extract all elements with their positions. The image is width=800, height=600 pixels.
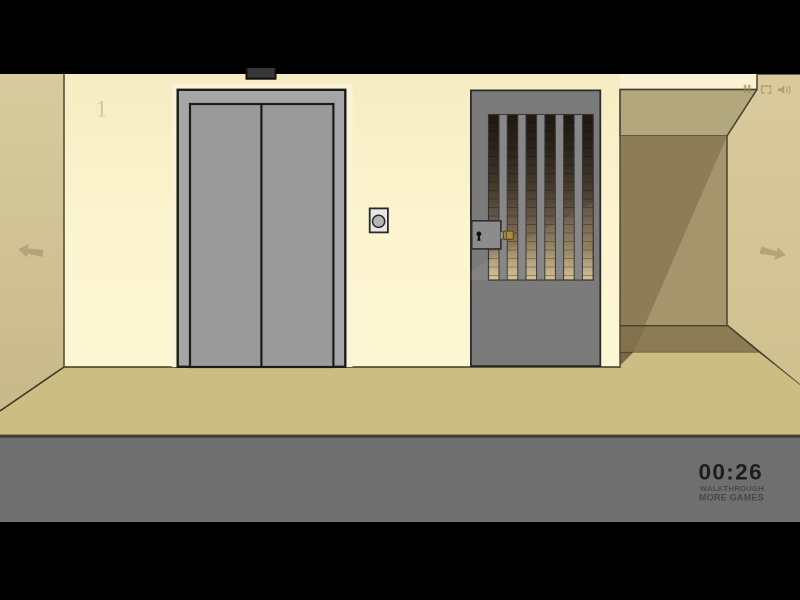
svg-text:MORE GAMES: MORE GAMES (699, 493, 764, 503)
svg-text:WALKTHROUGH: WALKTHROUGH (700, 484, 764, 493)
svg-text:00:26: 00:26 (698, 460, 763, 485)
svg-text:1: 1 (96, 97, 108, 122)
